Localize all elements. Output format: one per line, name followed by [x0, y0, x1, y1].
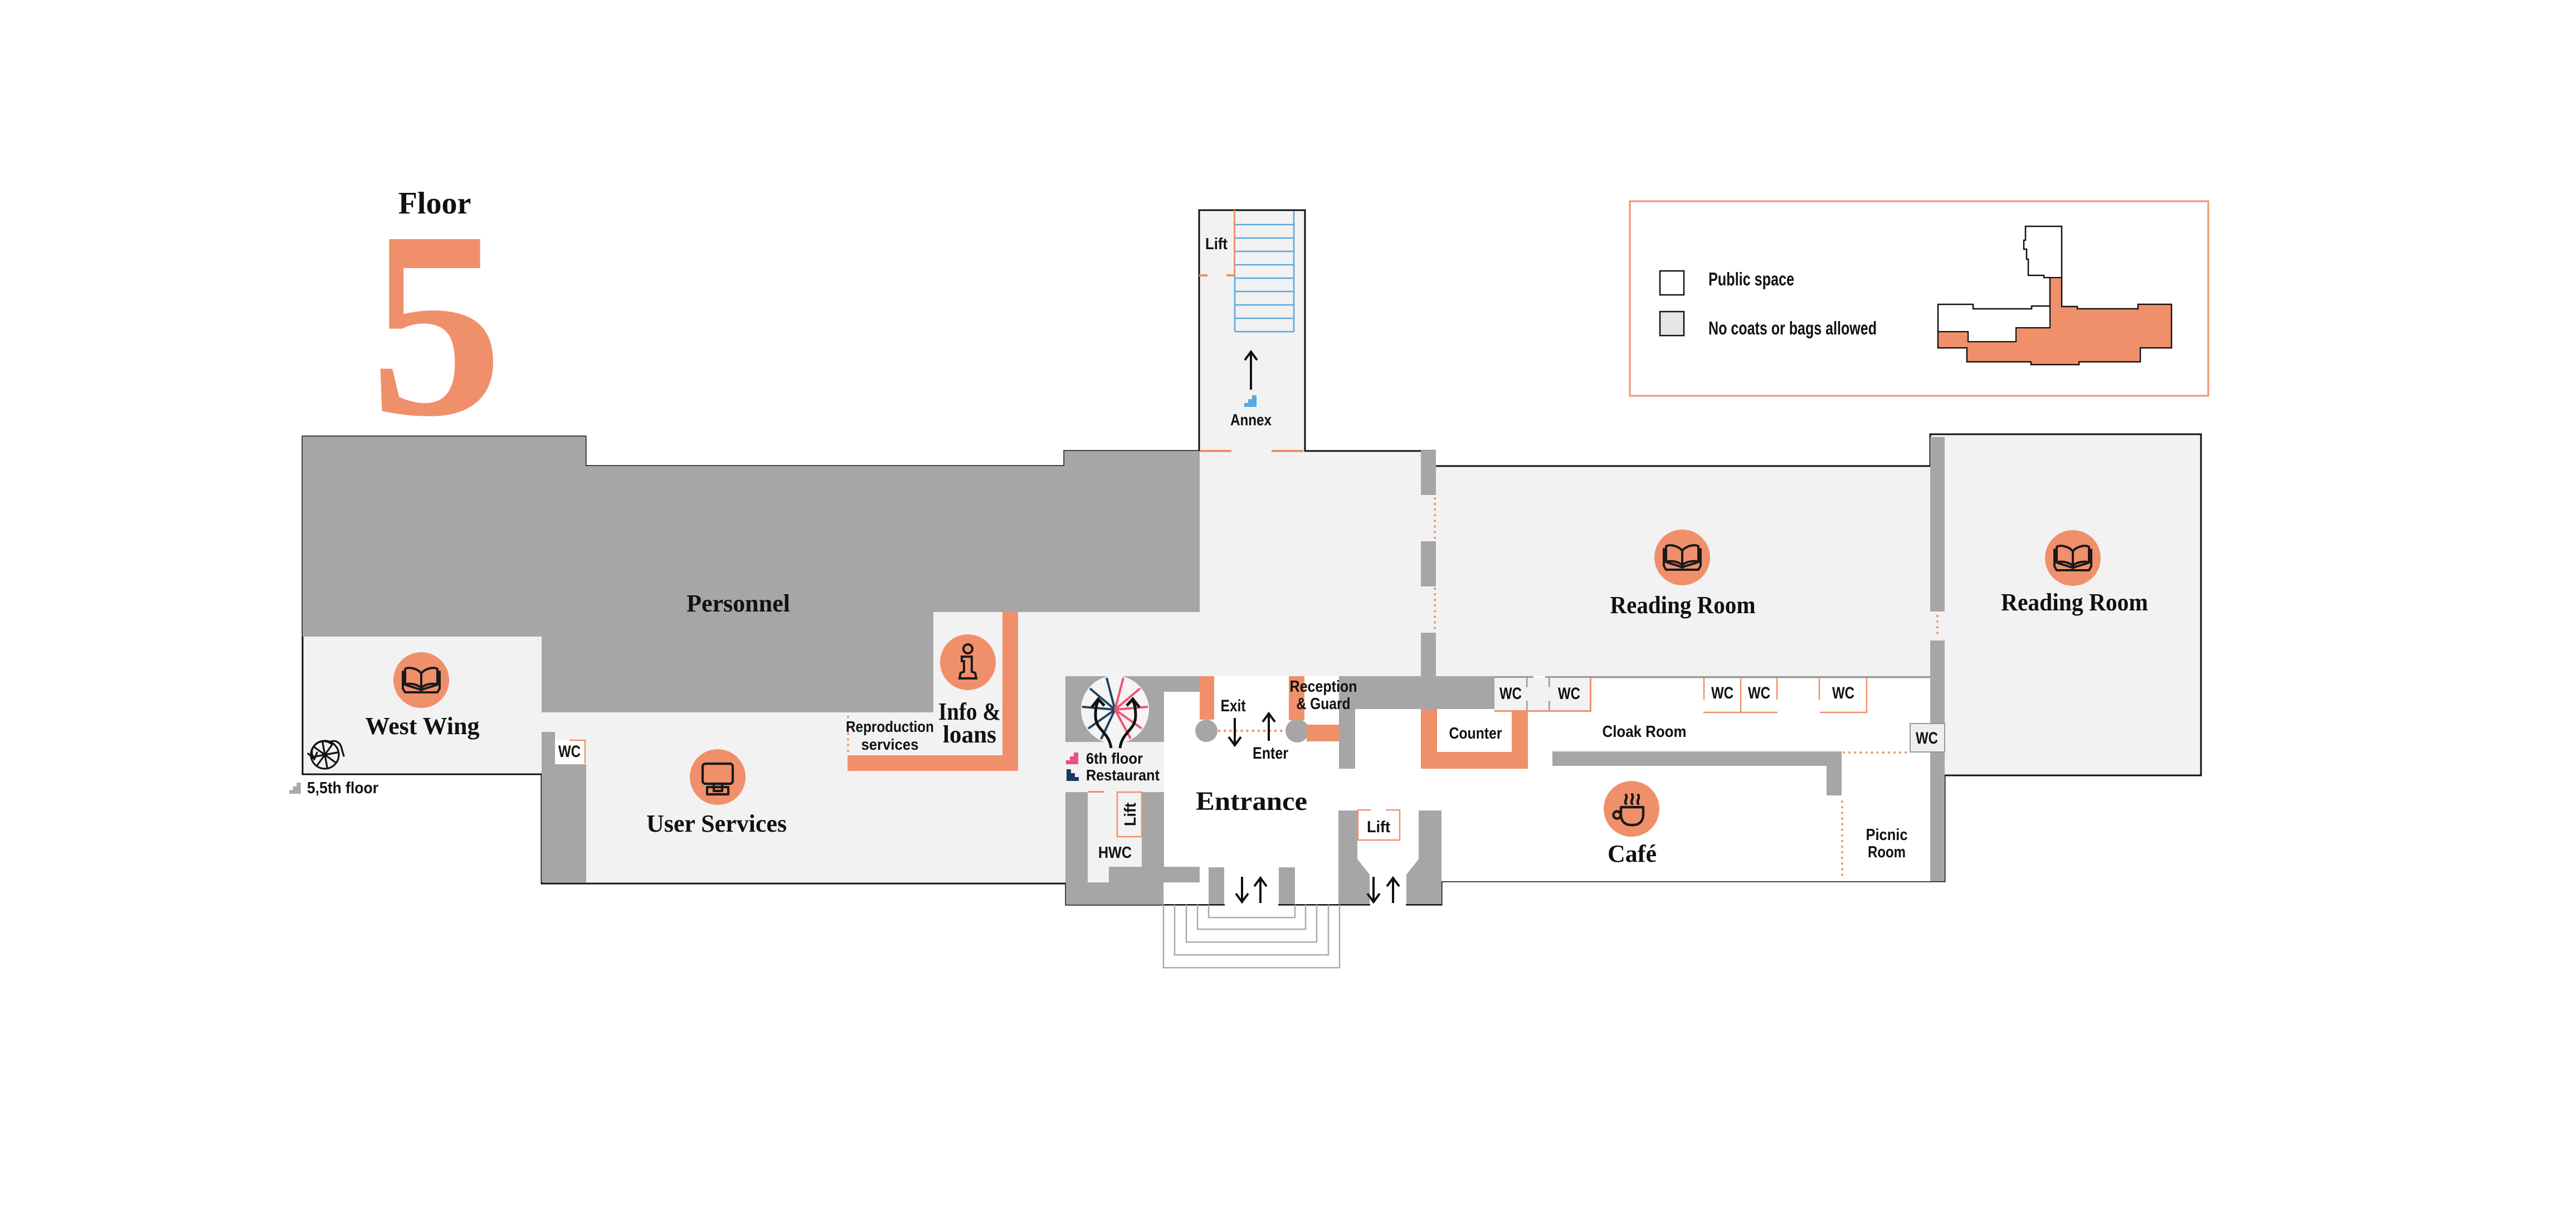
svg-text:Annex: Annex [1230, 411, 1272, 429]
svg-text:& Guard: & Guard [1297, 695, 1351, 713]
svg-text:Reading Room: Reading Room [1610, 591, 1756, 619]
svg-text:Personnel: Personnel [686, 590, 790, 617]
svg-text:User Services: User Services [646, 810, 787, 837]
svg-text:Restaurant: Restaurant [1086, 766, 1160, 784]
svg-text:Café: Café [1608, 840, 1657, 867]
svg-text:WC: WC [1711, 684, 1733, 702]
svg-text:HWC: HWC [1098, 844, 1132, 862]
svg-text:WC: WC [1832, 684, 1854, 702]
svg-text:West Wing: West Wing [366, 712, 480, 740]
svg-text:loans: loans [943, 721, 996, 748]
svg-text:5: 5 [370, 177, 503, 472]
svg-text:Room: Room [1868, 843, 1906, 861]
svg-text:WC: WC [1558, 685, 1580, 703]
svg-text:Entrance: Entrance [1196, 787, 1307, 816]
svg-text:Exit: Exit [1221, 697, 1246, 715]
svg-text:services: services [861, 736, 919, 753]
svg-text:Enter: Enter [1253, 744, 1288, 763]
svg-text:WC: WC [1916, 729, 1938, 748]
svg-text:WC: WC [558, 742, 581, 761]
svg-text:5,5th floor: 5,5th floor [307, 779, 378, 797]
svg-text:WC: WC [1748, 684, 1770, 702]
svg-text:Reception: Reception [1290, 678, 1357, 696]
svg-text:Lift: Lift [1205, 235, 1228, 253]
svg-text:Picnic: Picnic [1866, 826, 1908, 844]
svg-text:Reading Room: Reading Room [2001, 589, 2148, 616]
svg-text:Lift: Lift [1122, 803, 1140, 826]
svg-text:Lift: Lift [1367, 818, 1390, 836]
svg-text:Public space: Public space [1708, 269, 1794, 289]
svg-text:Cloak Room: Cloak Room [1603, 723, 1687, 741]
svg-text:Reproduction: Reproduction [846, 718, 934, 735]
svg-text:6th floor: 6th floor [1086, 750, 1143, 767]
svg-text:No coats or bags allowed: No coats or bags allowed [1708, 318, 1877, 338]
svg-text:WC: WC [1499, 685, 1522, 703]
svg-text:Counter: Counter [1449, 725, 1502, 742]
